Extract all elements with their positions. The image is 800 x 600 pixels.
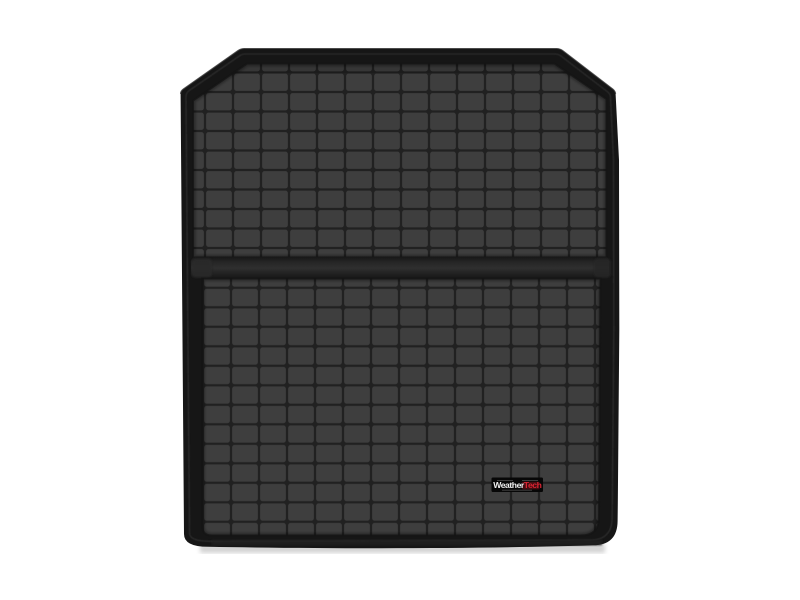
svg-text:WeatherTech: WeatherTech — [493, 480, 541, 490]
